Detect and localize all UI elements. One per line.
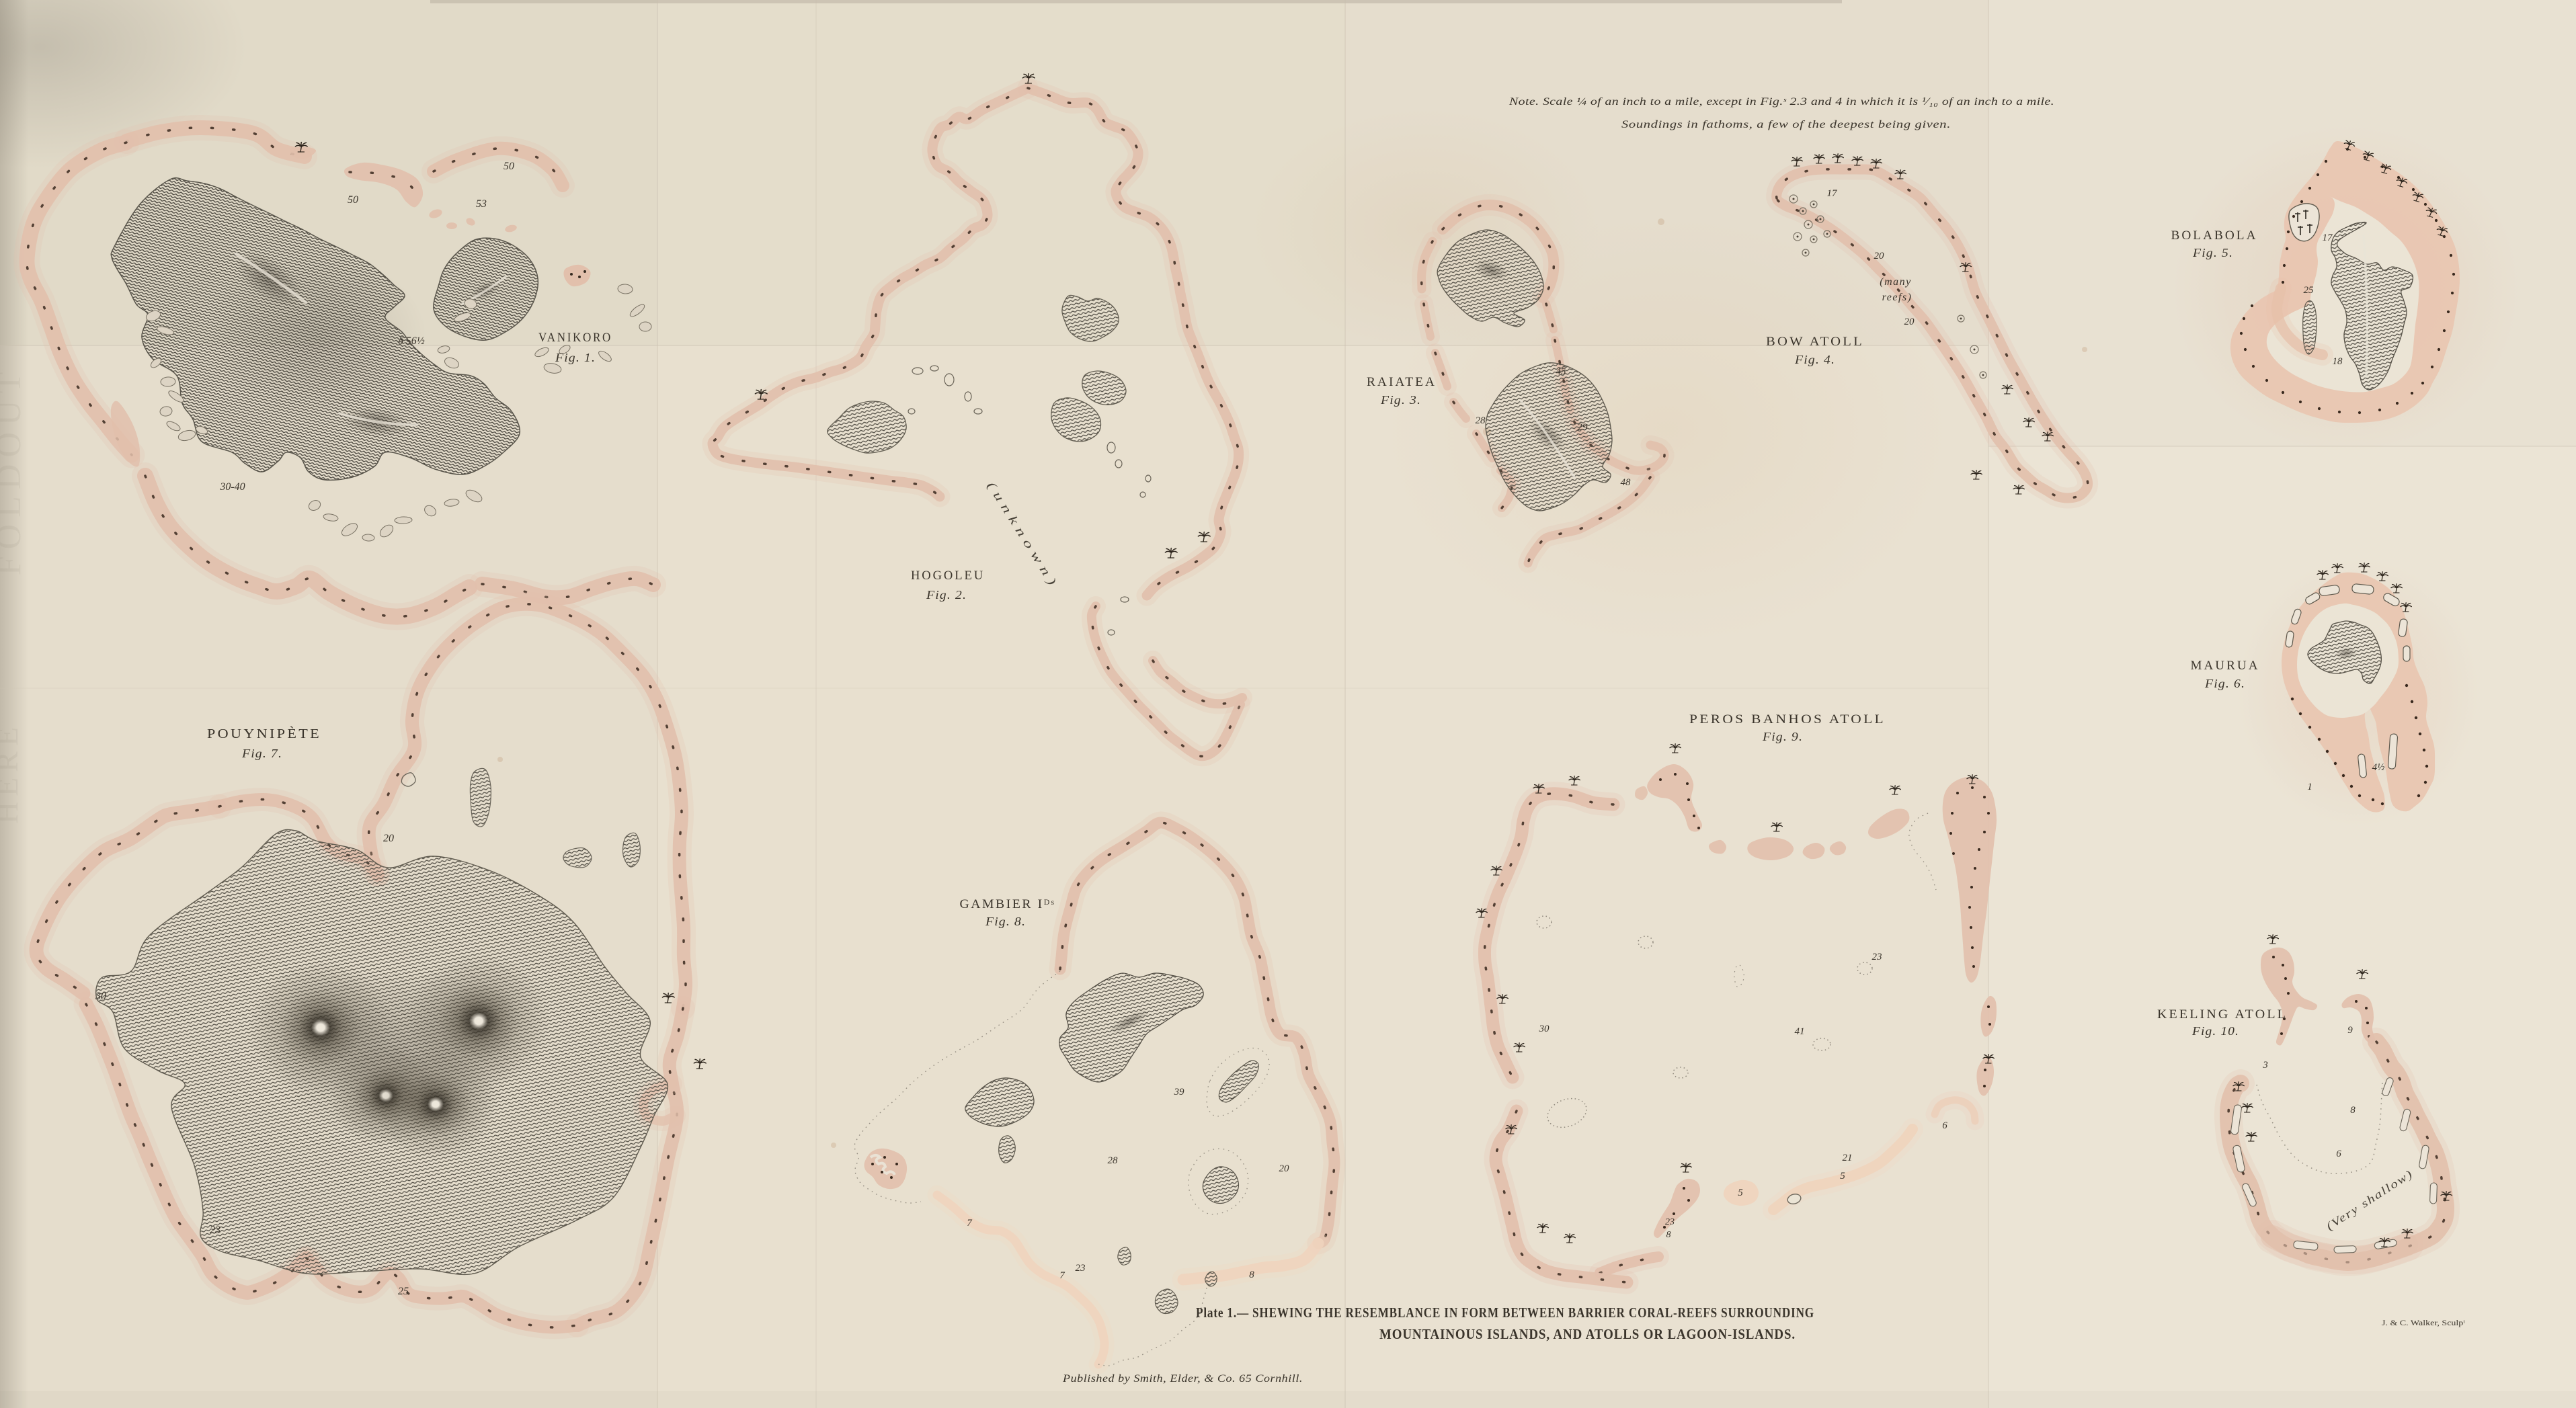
svg-text:Fig. 1.: Fig. 1. [555,351,596,364]
svg-text:PEROS BANHOS ATOLL: PEROS BANHOS ATOLL [1689,712,1886,727]
svg-text:5: 5 [1738,1188,1743,1198]
svg-text:Fig. 10.: Fig. 10. [2191,1024,2239,1038]
svg-text:25: 25 [2304,285,2315,296]
svg-text:17: 17 [1827,188,1839,199]
svg-text:HERE: HERE [0,722,24,824]
svg-text:9: 9 [2347,1025,2353,1036]
svg-text:21: 21 [1843,1153,1853,1163]
svg-text:45: 45 [1556,366,1567,377]
svg-text:VANIKORO: VANIKORO [538,331,612,345]
svg-text:25: 25 [398,1286,409,1297]
svg-text:KEELING ATOLL: KEELING ATOLL [2157,1007,2288,1022]
svg-text:Fig. 2.: Fig. 2. [926,588,967,602]
svg-text:29: 29 [1578,422,1588,433]
svg-text:23: 23 [1665,1217,1675,1227]
svg-text:8: 8 [2350,1105,2356,1116]
svg-text:Fig. 8.: Fig. 8. [985,915,1026,928]
svg-text:Soundings in fathoms, a few of: Soundings in fathoms, a few of the deepe… [1621,119,1951,130]
svg-text:HOGOLEU: HOGOLEU [911,569,985,583]
svg-text:30-40: 30-40 [219,481,245,493]
svg-text:Fig. 4.: Fig. 4. [1794,353,1835,366]
svg-text:53: 53 [476,198,487,210]
svg-text:23: 23 [1076,1263,1086,1274]
svg-text:6: 6 [2336,1149,2341,1159]
svg-text:Fig. 9.: Fig. 9. [1762,730,1803,743]
svg-text:39: 39 [1174,1087,1185,1098]
svg-text:J. & C. Walker, Sculpᵗ: J. & C. Walker, Sculpᵗ [2382,1318,2466,1327]
svg-text:BOW ATOLL: BOW ATOLL [1766,335,1864,349]
svg-text:GAMBIER Iᴰˢ: GAMBIER Iᴰˢ [960,897,1056,911]
svg-text:BOLABOLA: BOLABOLA [2171,229,2258,243]
svg-text:δ 56½: δ 56½ [398,335,424,347]
svg-text:Published by Smith, Elder, & C: Published by Smith, Elder, & Co. 65 Corn… [1062,1373,1303,1384]
svg-text:20: 20 [1904,317,1915,327]
svg-text:8: 8 [1249,1270,1254,1280]
svg-text:Plate 1.— SHEWING THE RESEMBLA: Plate 1.— SHEWING THE RESEMBLANCE IN FOR… [1196,1305,1814,1321]
svg-text:Fig. 3.: Fig. 3. [1380,393,1421,407]
svg-text:reefs): reefs) [1882,292,1913,303]
svg-text:28: 28 [1476,415,1486,426]
svg-text:30: 30 [95,991,106,1002]
svg-text:Fig. 7.: Fig. 7. [241,747,282,760]
svg-text:18: 18 [2333,356,2343,367]
svg-text:Fig. 5.: Fig. 5. [2192,246,2233,259]
svg-text:17: 17 [2323,233,2334,243]
svg-text:30: 30 [1539,1024,1550,1034]
svg-text:3: 3 [2262,1060,2268,1071]
svg-text:5: 5 [1840,1171,1845,1182]
svg-text:POUYNIPÈTE: POUYNIPÈTE [207,726,321,741]
svg-text:1: 1 [2307,782,2312,792]
svg-text:8: 8 [1666,1230,1671,1240]
svg-text:28: 28 [1108,1155,1119,1166]
svg-text:FOLDOUT: FOLDOUT [0,366,28,576]
svg-text:(many: (many [1880,276,1911,288]
svg-text:23: 23 [1872,952,1882,962]
svg-text:23: 23 [210,1225,220,1236]
svg-text:50: 50 [504,161,514,172]
svg-text:Fig. 6.: Fig. 6. [2204,677,2245,690]
svg-text:41: 41 [1795,1026,1805,1037]
svg-text:48: 48 [1621,477,1632,488]
svg-text:MAURUA: MAURUA [2191,659,2260,673]
svg-text:Note. Scale ¼ of an inch to a: Note. Scale ¼ of an inch to a mile, exce… [1508,96,2054,108]
svg-text:RAIATEA: RAIATEA [1367,375,1437,389]
svg-text:20: 20 [1874,251,1885,261]
svg-text:MOUNTAINOUS ISLANDS, AND ATOLL: MOUNTAINOUS ISLANDS, AND ATOLLS OR LAGOO… [1379,1326,1796,1342]
svg-text:20: 20 [1279,1163,1290,1174]
svg-text:6: 6 [1942,1120,1947,1131]
svg-text:50: 50 [348,194,358,206]
svg-text:4½: 4½ [2372,762,2385,773]
svg-text:20: 20 [383,833,394,844]
